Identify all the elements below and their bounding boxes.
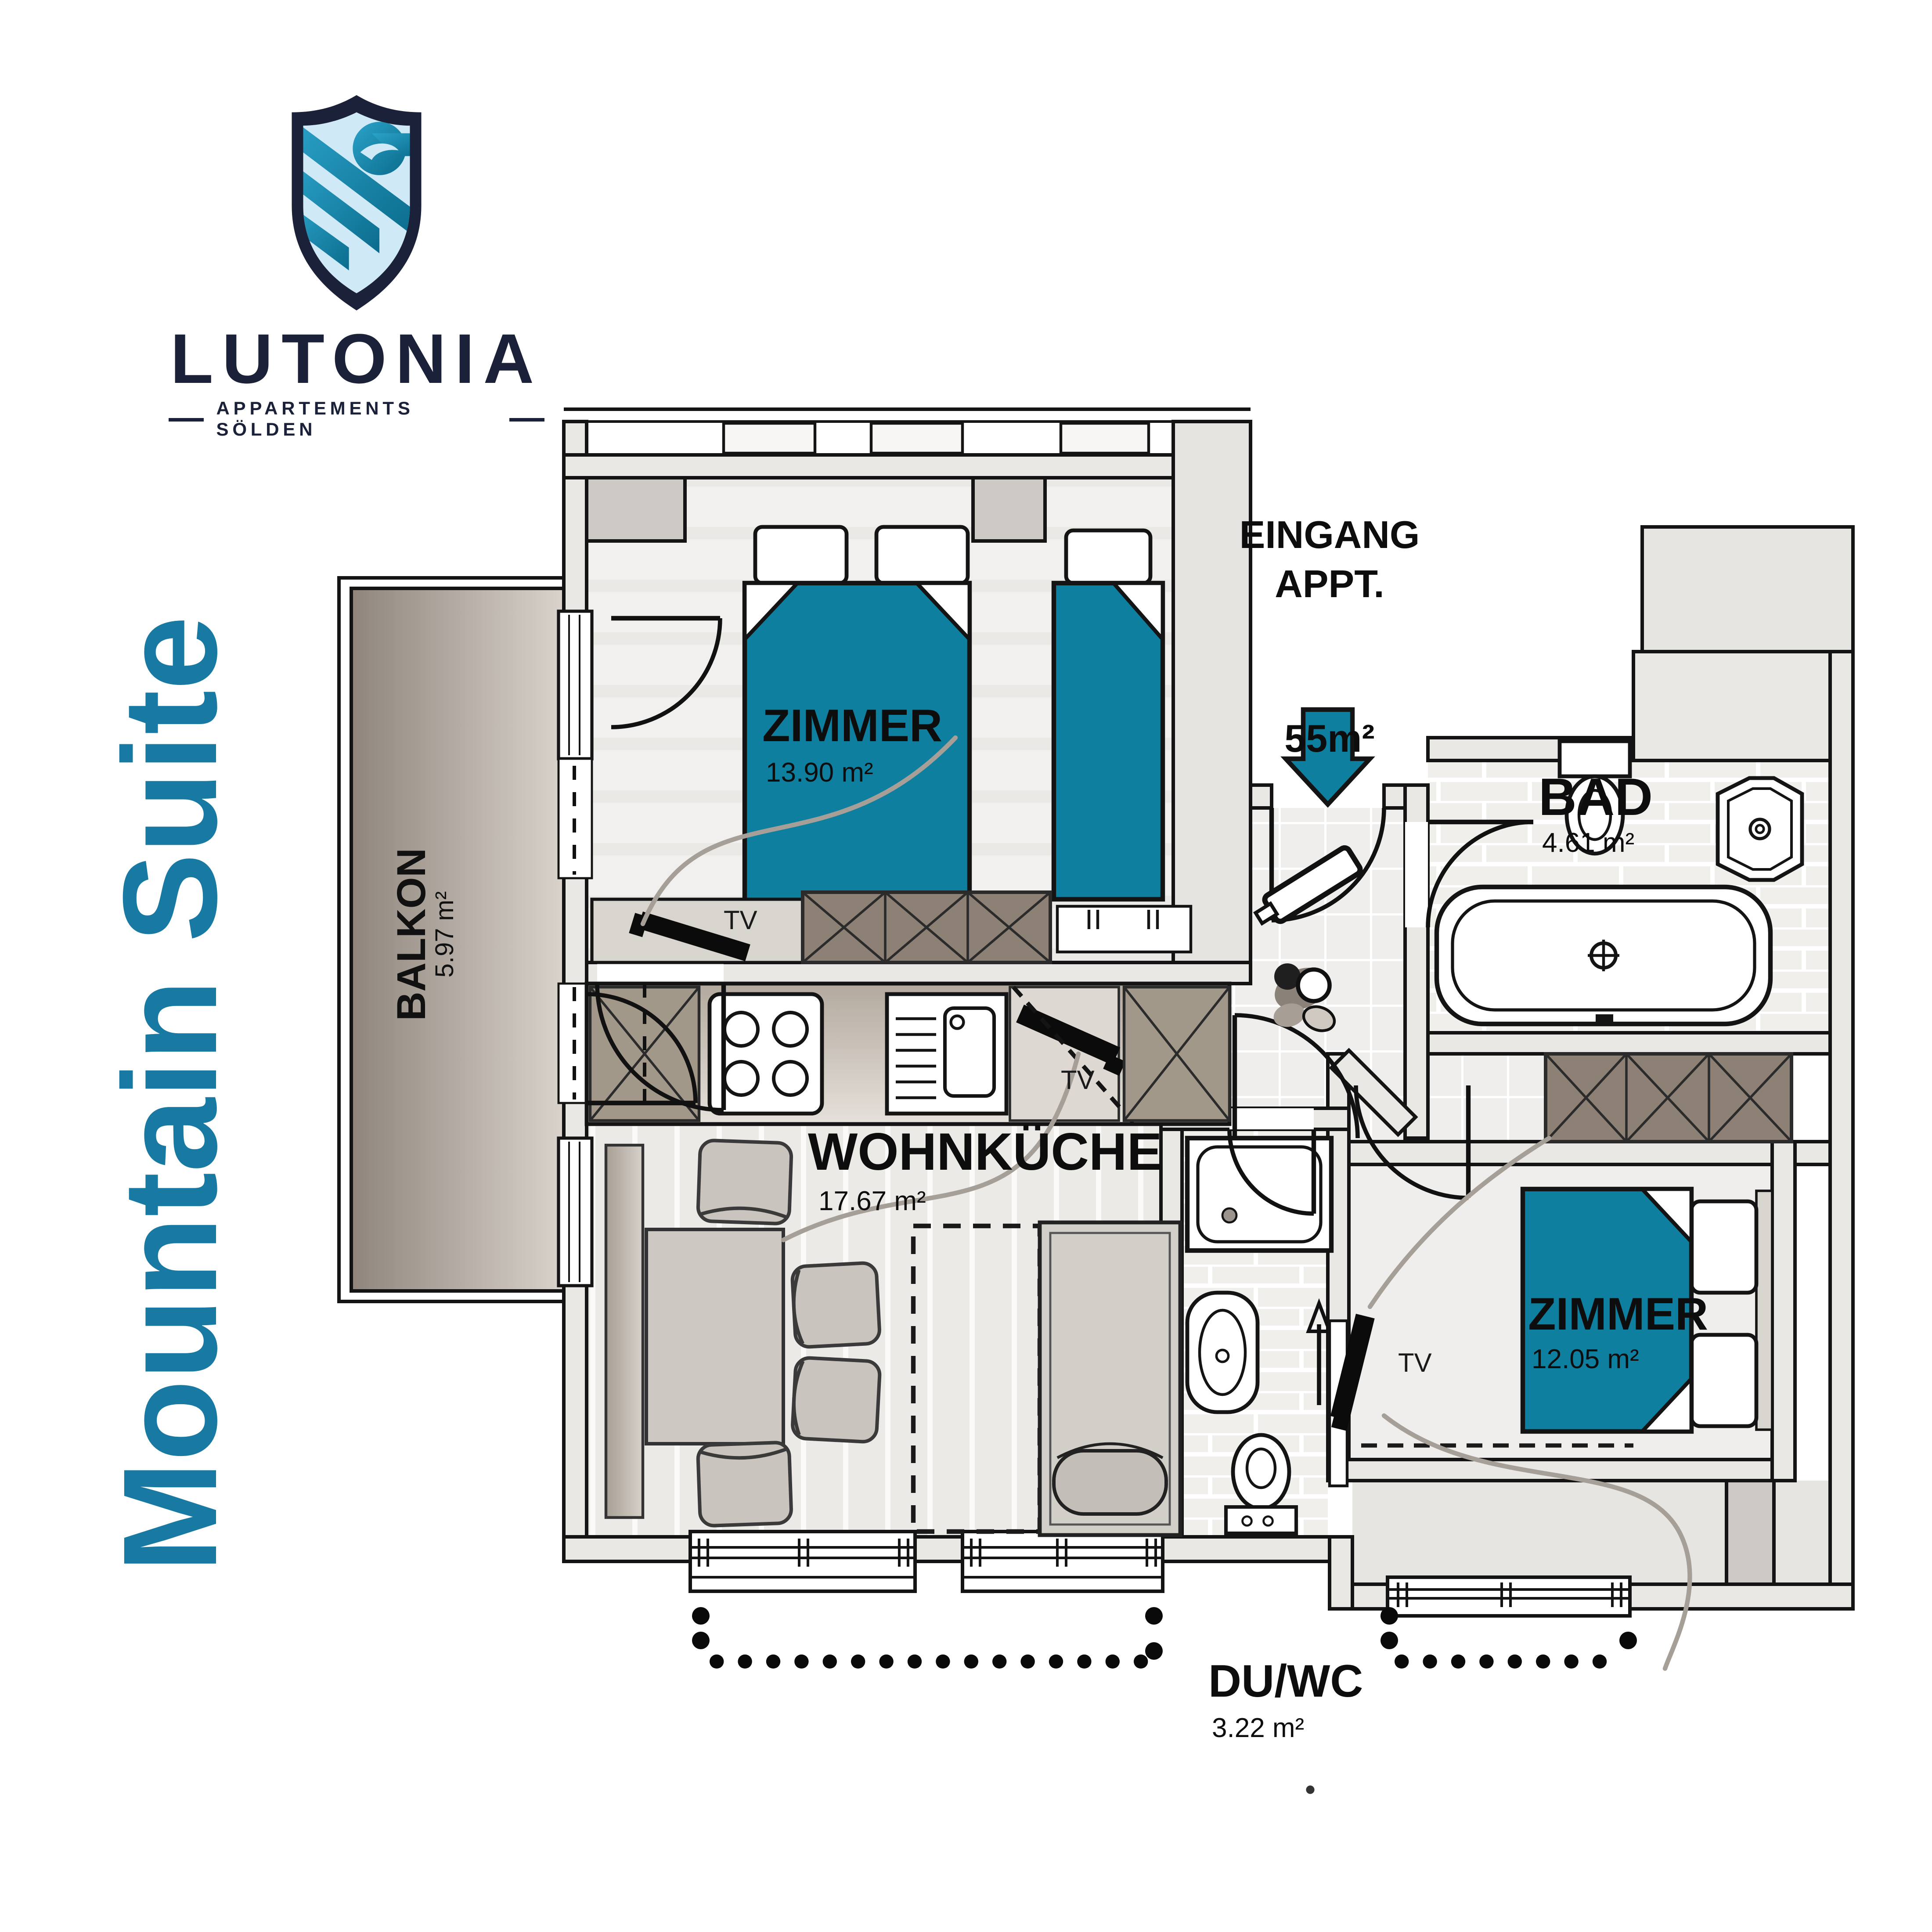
balcony-label: BALKON 5.97 m²	[390, 671, 502, 1198]
floor-plan	[0, 0, 1932, 1932]
toilet-wc-icon	[1226, 1435, 1296, 1533]
tv-label-bedroom-right: TV	[1398, 1349, 1432, 1379]
dotted-lines	[692, 1607, 1637, 1794]
showerwc-name: DU/WC	[1208, 1654, 1363, 1709]
balcony-name: BALKON	[390, 671, 432, 1198]
balcony-area: 5.97 m²	[432, 671, 460, 1198]
balcony-window-1	[559, 611, 592, 759]
bedroom-right-area: 12.05 m²	[1532, 1345, 1639, 1377]
bath-name: BAD	[1539, 769, 1653, 829]
bedroom-right-window	[1388, 1577, 1630, 1616]
stove-icon	[710, 994, 822, 1114]
showerwc-door-opening	[1229, 1108, 1314, 1129]
washbasin-wc-icon	[1187, 1293, 1258, 1412]
single-bed	[1054, 530, 1163, 899]
wardrobe-bedroom-top	[803, 892, 1050, 962]
apartment-size: 55m²	[1180, 717, 1479, 762]
living-name: WOHNKÜCHE	[808, 1124, 1162, 1184]
bedroom-top-door-opening	[597, 962, 724, 984]
showerwc-area: 3.22 m²	[1212, 1714, 1304, 1746]
bath-area: 4.61 m²	[1542, 829, 1634, 861]
daybed	[1040, 1222, 1180, 1535]
floorplan-page: LUTONIA APPARTEMENTS SÖLDEN Mountain Sui…	[0, 0, 1932, 1932]
shelf	[1057, 906, 1191, 952]
bedroom-right-name: ZIMMER	[1528, 1287, 1708, 1342]
wardrobe-bath	[1546, 1054, 1791, 1142]
sink-icon	[887, 994, 1006, 1114]
bench	[606, 1145, 643, 1517]
bath-door-opening	[1405, 822, 1428, 927]
bedroom-top-area: 13.90 m²	[766, 759, 873, 790]
bedroom-top-name: ZIMMER	[762, 699, 942, 753]
tv-label-bedroom-top: TV	[724, 906, 757, 936]
washbasin-bath-icon	[1718, 778, 1802, 880]
entrance-label-2: APPT.	[1180, 562, 1479, 608]
bathtub-icon	[1437, 887, 1770, 1024]
cabinet-right	[1124, 987, 1229, 1121]
tv-label-kitchen: TV	[1061, 1066, 1095, 1096]
dining-table	[646, 1229, 783, 1444]
living-area: 17.67 m²	[818, 1187, 926, 1219]
entrance-label-1: EINGANG	[1180, 513, 1479, 559]
balcony-window-2	[559, 1138, 592, 1286]
